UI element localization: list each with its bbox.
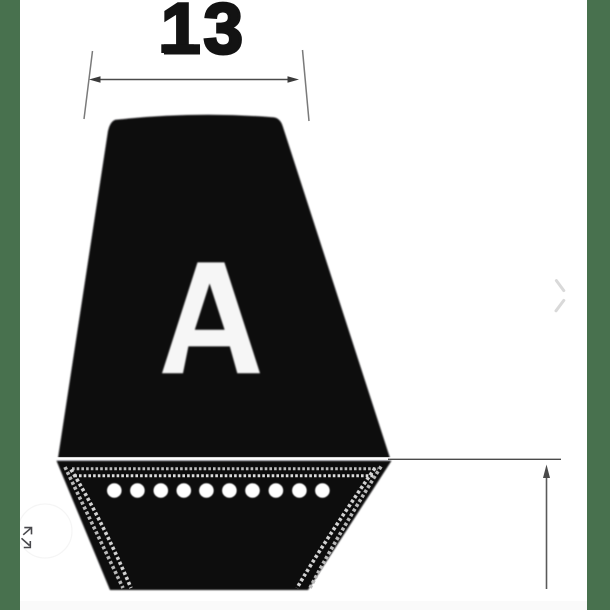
svg-text:13: 13 [161,0,246,69]
